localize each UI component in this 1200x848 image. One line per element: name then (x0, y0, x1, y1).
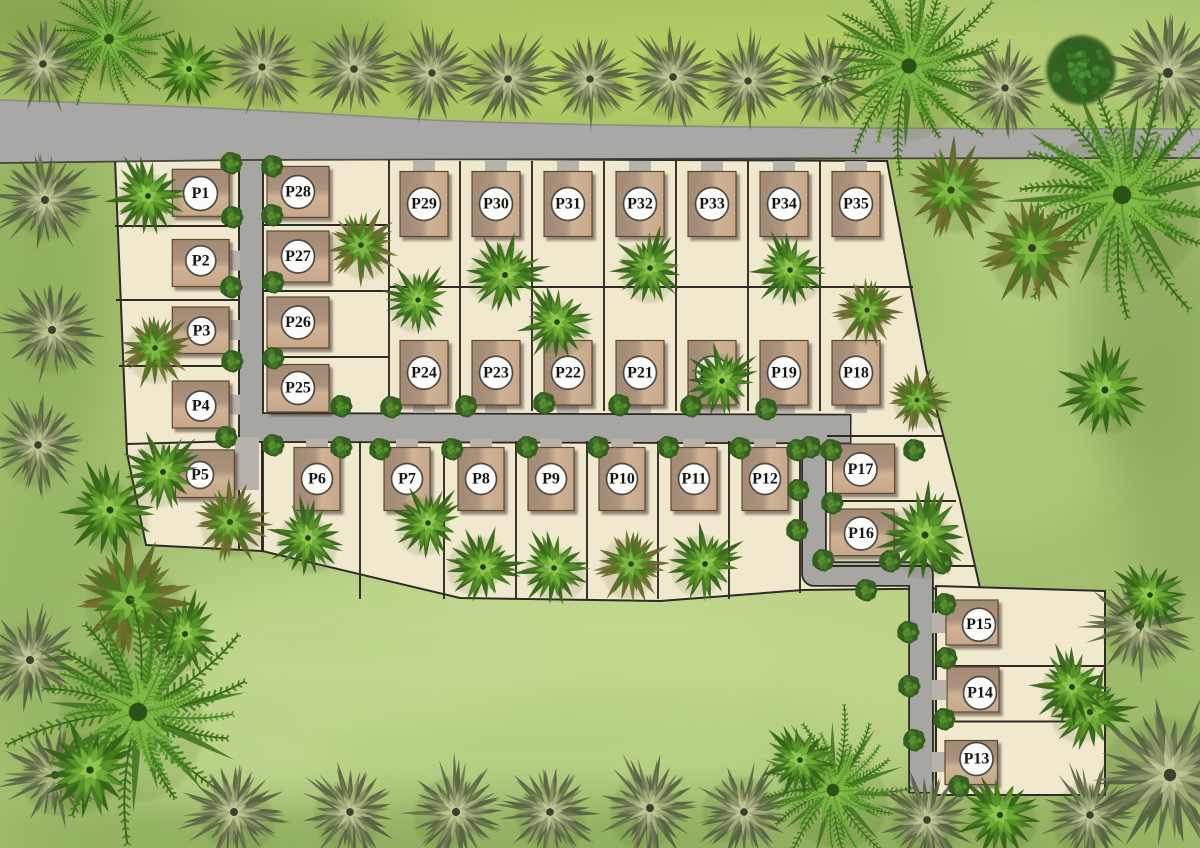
svg-text:P25: P25 (285, 380, 311, 397)
svg-text:P28: P28 (285, 184, 311, 201)
svg-text:P11: P11 (682, 471, 707, 488)
svg-text:P24: P24 (411, 364, 437, 381)
svg-text:P14: P14 (967, 685, 993, 702)
svg-text:P27: P27 (285, 248, 311, 265)
svg-text:P22: P22 (555, 364, 581, 381)
svg-text:P34: P34 (771, 196, 797, 213)
svg-text:P29: P29 (411, 196, 437, 213)
svg-text:P30: P30 (483, 196, 509, 213)
svg-text:P32: P32 (627, 196, 653, 213)
svg-text:P23: P23 (483, 364, 509, 381)
svg-text:P18: P18 (843, 364, 869, 381)
svg-text:P9: P9 (542, 471, 560, 488)
svg-text:P2: P2 (192, 252, 210, 269)
svg-text:P12: P12 (752, 471, 778, 488)
svg-text:P13: P13 (964, 751, 990, 768)
svg-text:P1: P1 (192, 185, 210, 202)
svg-text:P10: P10 (609, 471, 635, 488)
svg-text:P16: P16 (848, 525, 874, 542)
svg-text:P26: P26 (285, 314, 311, 331)
svg-text:P19: P19 (771, 364, 797, 381)
svg-text:P7: P7 (398, 471, 416, 488)
svg-text:P31: P31 (555, 196, 581, 213)
svg-text:P35: P35 (843, 196, 869, 213)
svg-text:P17: P17 (848, 461, 874, 478)
svg-text:P3: P3 (193, 323, 211, 340)
svg-text:P21: P21 (627, 364, 653, 381)
svg-text:P15: P15 (966, 616, 992, 633)
svg-text:P33: P33 (699, 196, 725, 213)
svg-text:P8: P8 (472, 471, 490, 488)
svg-text:P4: P4 (192, 398, 210, 415)
svg-text:P6: P6 (308, 471, 326, 488)
